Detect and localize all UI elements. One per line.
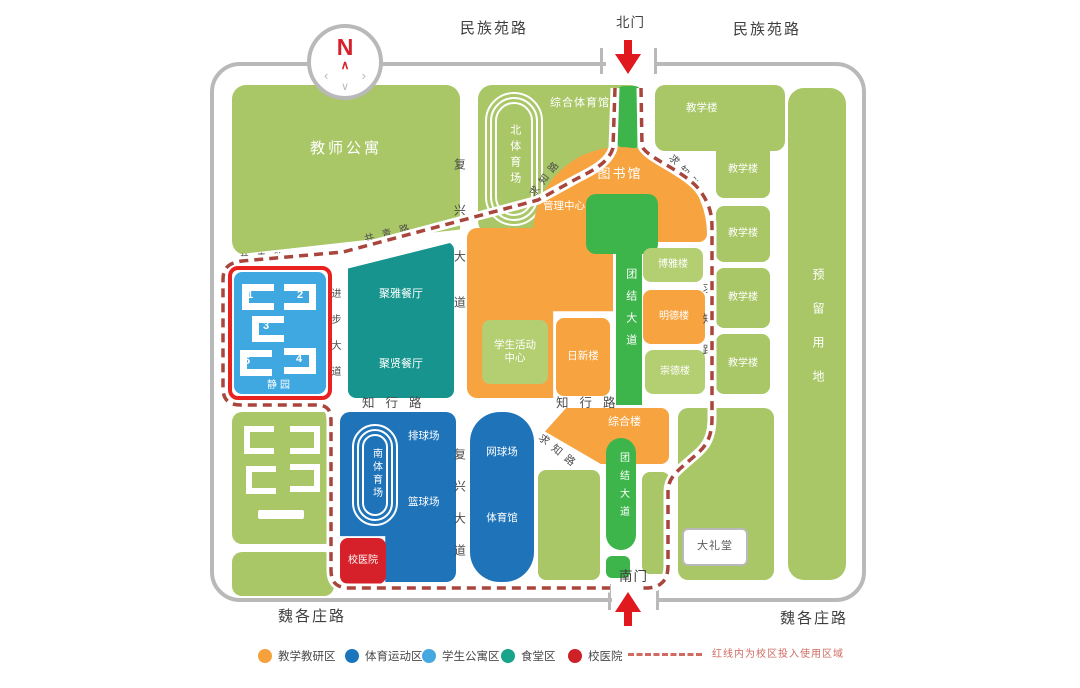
auditorium-block: 大礼堂 (682, 528, 748, 566)
teaching-building-5-label: 教学楼 (716, 334, 770, 394)
north-stadium-label: 北体育场 (507, 124, 521, 188)
management-center-label: 管理中心 (543, 200, 585, 213)
rixin-building-label: 日新楼 (556, 318, 610, 396)
tuanjie-avenue-lower-label: 团结大道 (616, 452, 629, 524)
building-shape (290, 426, 320, 454)
legend-dot-apartment (422, 649, 436, 663)
south-gate-tick-right (656, 584, 659, 610)
tuanjie-avenue-cap (586, 194, 658, 254)
north-gate-tick-right (654, 48, 657, 74)
dorm-number-3: 3 (263, 320, 269, 332)
legend-item-apartment: 学生公寓区 (422, 648, 500, 664)
jingyuan-label: 静园 (234, 380, 326, 393)
road-weigezhuang-left-label: 魏各庄路 (278, 608, 346, 626)
qiuzhi-road-east-label: 求知路 (700, 282, 713, 375)
legend-note: 红线内为校区投入使用区域 (712, 649, 844, 661)
gymnasium-label: 综合体育馆 (550, 97, 610, 111)
legend-dot-hospital (568, 649, 582, 663)
teaching-building-3-label: 教学楼 (716, 206, 770, 262)
teacher-apartment-block (232, 85, 460, 255)
north-gate-label: 北门 (616, 15, 645, 31)
boya-building-label: 博雅楼 (643, 248, 703, 282)
sports-hall-label: 体育馆 (470, 512, 534, 525)
canteen-north-label: 聚雅餐厅 (348, 288, 454, 302)
tuanjie-avenue-upper-label: 团结大道 (623, 268, 637, 356)
legend-item-teaching: 教学教研区 (258, 648, 336, 664)
teaching-building-4-label: 教学楼 (716, 268, 770, 328)
north-gate-arrow-icon (613, 40, 643, 76)
southwest-plain-green-block (232, 552, 334, 596)
teaching-building-2-label: 教学楼 (716, 142, 770, 198)
road-weigezhuang-right-label: 魏各庄路 (780, 610, 848, 628)
legend-dot-sports (345, 649, 359, 663)
south-stadium-label: 南体育场 (369, 448, 382, 500)
canteen-south-label: 聚贤餐厅 (348, 358, 454, 372)
teaching-building-1-label: 教学楼 (686, 102, 718, 115)
legend-dot-teaching (258, 649, 272, 663)
tennis-label: 网球场 (470, 446, 534, 459)
compass-north-caret-icon: ∧ (311, 58, 379, 72)
east-of-avenue-green-strip (642, 472, 670, 574)
mingde-building-label: 明德楼 (643, 290, 705, 344)
volleyball-label: 排球场 (408, 430, 440, 443)
south-gate-tick-left (608, 584, 611, 610)
road-minzuyuan-left-label: 民族苑路 (460, 20, 528, 38)
dorm-number-1: 1 (247, 289, 253, 301)
building-shape (244, 426, 274, 454)
north-gate-tick-left (600, 48, 603, 74)
reserved-land-label: 预留用地 (810, 268, 825, 404)
hospital-label: 校医院 (340, 538, 386, 584)
legend-label-hospital: 校医院 (588, 651, 623, 663)
auditorium-label: 大礼堂 (697, 540, 733, 553)
complex-building-label: 综合楼 (608, 416, 641, 430)
basketball-label: 篮球场 (408, 496, 440, 509)
south-gate-arrow-icon (613, 592, 643, 628)
dorm-number-5: 5 (244, 355, 250, 367)
legend-label-apartment: 学生公寓区 (442, 651, 500, 663)
compass-south-chevron-icon: ∨ (311, 80, 379, 93)
legend-dashed-line-sample (628, 653, 702, 656)
legend-label-sports: 体育运动区 (365, 651, 423, 663)
building-shape-bar (258, 510, 304, 519)
teacher-apartment-label: 教师公寓 (232, 140, 460, 159)
chongde-building-label: 崇德楼 (645, 350, 705, 394)
north-gate-road (616, 86, 642, 148)
road-minzuyuan-right-label: 民族苑路 (733, 21, 801, 39)
gongqing-road-top-label: 共青路 (240, 251, 291, 264)
building-shape (246, 466, 276, 494)
fuxing-avenue-upper-label: 复兴大道 (452, 158, 466, 342)
legend-item-sports: 体育运动区 (345, 648, 423, 664)
legend-label-teaching: 教学教研区 (278, 651, 336, 663)
tennis-sportshall-block (470, 412, 534, 582)
dorm-number-2: 2 (297, 289, 303, 301)
building-shape (290, 464, 320, 492)
legend-dot-canteen (501, 649, 515, 663)
canteen-block (348, 242, 454, 398)
compass: N ∧ ‹ › ∨ (307, 24, 383, 100)
campus-map: 教师公寓 北体育场 综合体育馆 图书馆 管理中心 学生活动中心 日新楼 团结大道… (0, 0, 1080, 688)
student-activity-center-label: 学生活动中心 (490, 320, 540, 384)
compass-north-letter: N (311, 34, 379, 61)
south-gate-label: 南门 (619, 569, 648, 585)
south-central-green-block (538, 470, 600, 580)
legend-label-canteen: 食堂区 (521, 651, 556, 663)
dorm-number-4: 4 (296, 353, 302, 365)
zhixing-road-right-label: 知行路 (556, 396, 627, 411)
fuxing-avenue-lower-label: 复兴大道 (452, 448, 466, 576)
legend-item-hospital: 校医院 (568, 648, 623, 664)
zhixing-road-left-label: 知行路 (362, 396, 433, 411)
legend-item-canteen: 食堂区 (501, 648, 556, 664)
